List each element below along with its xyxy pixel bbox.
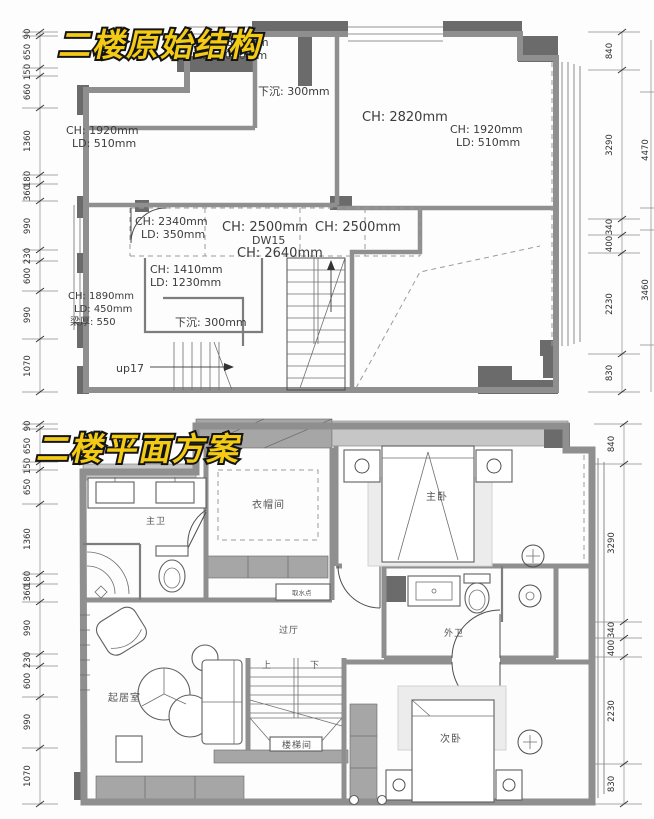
top-main-stair — [287, 258, 345, 390]
annotation: 下沉: 300mm — [175, 316, 247, 329]
top-plan-title: 二楼原始结构 — [56, 26, 268, 64]
annotation: LD: 450mm — [74, 304, 132, 315]
dim-label: 230 — [23, 248, 33, 264]
stair-up-arrowhead — [327, 260, 335, 270]
dim-label: 990 — [23, 218, 33, 234]
annotation: 梁厚: 550 — [70, 315, 116, 328]
top-dims-left: 90 650 150 660 1360 180 360 990 230 600 … — [22, 29, 58, 395]
room-label-living-room: 起居室 — [108, 691, 141, 704]
armchair — [93, 603, 150, 659]
nightstand — [344, 450, 380, 482]
toilet-tank — [156, 546, 188, 556]
second-bedroom-furniture — [386, 686, 542, 802]
bottom-dims-left: 90 650 150 650 1360 180 360 990 230 600 … — [22, 421, 58, 807]
bottom-dims-right: 840 3290 340 400 2230 830 — [594, 421, 642, 807]
dim-label: 3290 — [605, 134, 615, 156]
top-plan: 90 650 150 660 1360 180 360 990 230 600 … — [22, 21, 654, 395]
annotation: LD: 510mm — [456, 136, 520, 149]
toilet-tank — [464, 574, 490, 583]
dim-label: 650 — [23, 479, 33, 495]
nightstand — [496, 770, 522, 800]
guest-bath-fixtures — [408, 574, 541, 613]
annotation: CH: 2640mm — [237, 246, 323, 261]
floor-drain — [95, 586, 107, 598]
dim-label: 180 — [23, 571, 33, 587]
bottom-plan: 主卫 衣帽间 主卧 外卫 过厅 楼梯间 次卧 起居室 取水点 上 下 90 65… — [22, 419, 642, 807]
square-table — [116, 736, 142, 762]
dim-label: 230 — [23, 652, 33, 668]
dim-label: 600 — [23, 268, 33, 284]
annotation: CH: 1410mm — [150, 263, 223, 276]
bed — [382, 446, 474, 562]
dim-label: 830 — [607, 776, 617, 792]
room-label-stairwell: 楼梯间 — [282, 739, 312, 751]
room-label-cloakroom: 衣帽间 — [252, 498, 285, 511]
top-dims-right: 840 3290 340 400 2230 830 — [588, 29, 640, 395]
floorplan-page: 90 650 150 660 1360 180 360 990 230 600 … — [0, 0, 654, 819]
dim-label: 400 — [607, 640, 617, 656]
spotlight — [350, 796, 359, 805]
dim-label: 1360 — [23, 130, 33, 152]
dim-label: 990 — [23, 620, 33, 636]
dim-label: 3290 — [607, 532, 617, 554]
room-label-water-point: 取水点 — [292, 588, 312, 597]
sink — [156, 482, 194, 503]
annotation: CH: 2340mm — [135, 215, 208, 228]
room-label-second-bedroom: 次卧 — [440, 732, 462, 745]
annotation: CH: 1920mm — [66, 124, 139, 137]
annotation: CH: 2500mm — [315, 220, 401, 235]
annotation: LD: 1230mm — [150, 276, 221, 289]
sloped-ceiling-dashed — [356, 246, 540, 388]
shower-area — [87, 552, 129, 594]
dim-label: 150 — [23, 458, 33, 474]
annotation: CH: 2820mm — [362, 110, 448, 125]
toilet — [159, 560, 185, 592]
annotation: 下沉: 300mm — [258, 85, 330, 98]
dim-label: 650 — [23, 44, 33, 60]
dim-label: 1070 — [23, 765, 33, 787]
top-entry-stair — [150, 342, 234, 390]
dim-label: 180 — [23, 171, 33, 187]
annotation-up17: up17 — [116, 362, 144, 375]
bottom-bay-window-lines — [598, 458, 604, 798]
cloakroom — [218, 470, 330, 600]
dim-label: 90 — [23, 421, 33, 432]
dim-label: 990 — [23, 307, 33, 323]
annotation: CH: 2500mm — [222, 220, 308, 235]
bed — [412, 700, 494, 802]
dim-label: 360 — [23, 185, 33, 201]
dim-label: 660 — [23, 84, 33, 100]
sink — [96, 482, 134, 503]
dim-label: 840 — [607, 436, 617, 452]
stair-up-label: 上 — [262, 660, 272, 671]
nightstand — [386, 770, 412, 800]
room-label-hallway: 过厅 — [279, 624, 299, 636]
dim-label: 840 — [605, 43, 615, 59]
dim-label: 1070 — [23, 355, 33, 377]
dim-label: 600 — [23, 673, 33, 689]
stair-down-label: 下 — [310, 661, 320, 671]
up17-arrowhead — [224, 363, 234, 371]
dim-label: 360 — [23, 585, 33, 601]
annotation: LD: 350mm — [141, 228, 205, 241]
spotlight — [378, 796, 387, 805]
dim-label: 4470 — [641, 139, 651, 161]
room-label-master-bath: 主卫 — [146, 515, 166, 527]
dim-label: 340 — [607, 622, 617, 638]
dim-label: 2230 — [605, 293, 615, 315]
dim-label: 1360 — [23, 528, 33, 550]
room-label-master-bedroom: 主卧 — [426, 490, 448, 503]
floorplan-canvas: 90 650 150 660 1360 180 360 990 230 600 … — [0, 0, 654, 819]
right-bay-window-lines — [562, 62, 580, 346]
dim-label: 340 — [605, 219, 615, 235]
dim-label: 990 — [23, 714, 33, 730]
dim-label: 3460 — [641, 279, 651, 301]
annotation: CH: 1920mm — [450, 123, 523, 136]
dim-label: 650 — [23, 438, 33, 454]
bottom-plan-title: 二楼平面方案 — [34, 430, 246, 468]
room-label-guest-bath: 外卫 — [444, 627, 464, 639]
living-room-furniture — [93, 603, 242, 762]
shower-head — [519, 585, 541, 607]
top-dims-far-right: 4470 3460 — [640, 40, 654, 392]
dim-label: 2230 — [607, 700, 617, 722]
dim-label: 830 — [605, 365, 615, 381]
toilet — [465, 583, 489, 613]
master-bedroom-furniture — [344, 446, 584, 567]
dim-label: 400 — [605, 236, 615, 252]
dim-label: 90 — [23, 29, 33, 40]
dim-label: 150 — [23, 64, 33, 80]
nightstand — [476, 450, 512, 482]
annotation: LD: 510mm — [72, 137, 136, 150]
annotation: CH: 1890mm — [68, 291, 134, 302]
